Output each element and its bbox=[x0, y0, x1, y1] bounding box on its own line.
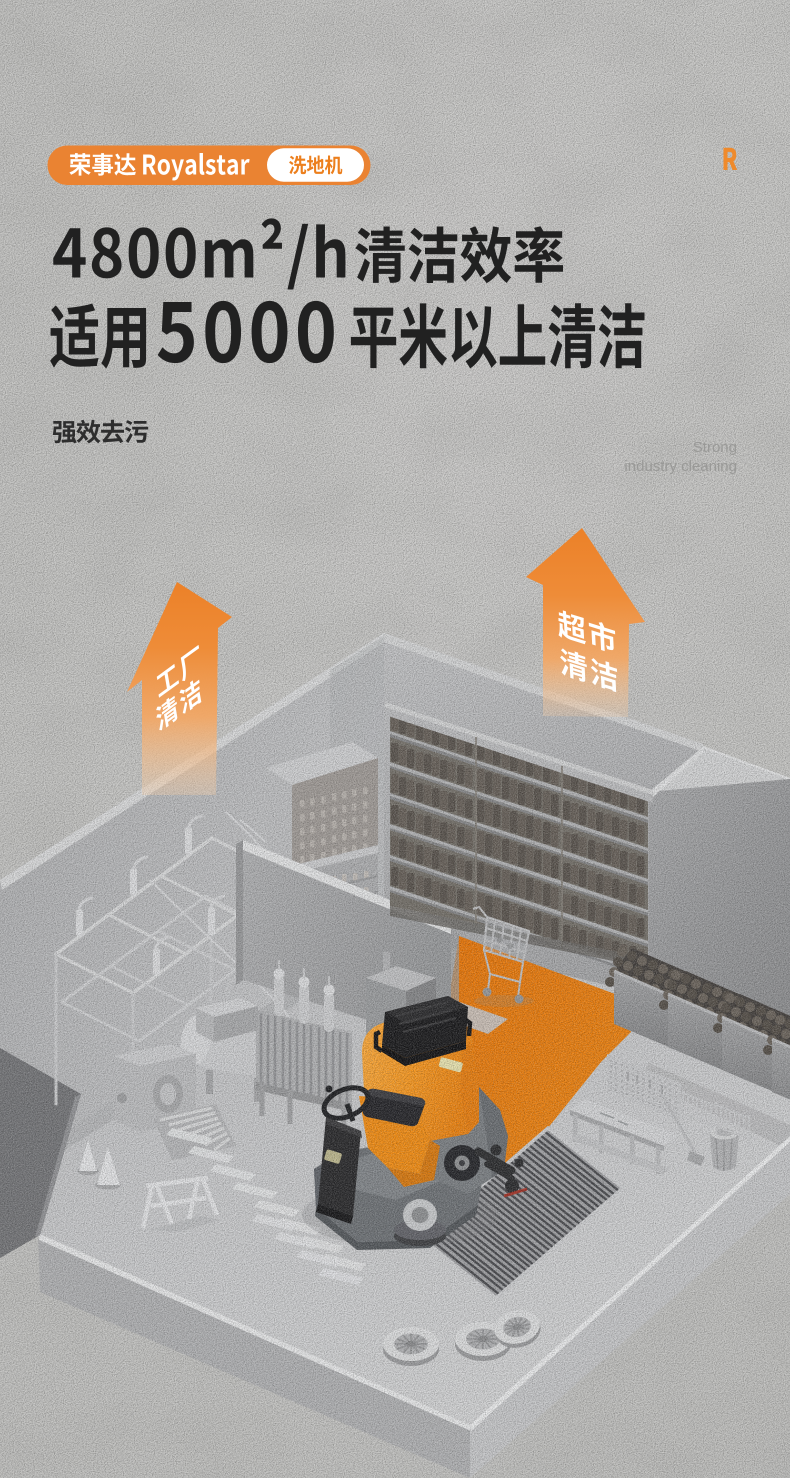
svg-text:Strong: Strong bbox=[693, 439, 737, 456]
svg-text:industry cleaning: industry cleaning bbox=[624, 458, 737, 475]
